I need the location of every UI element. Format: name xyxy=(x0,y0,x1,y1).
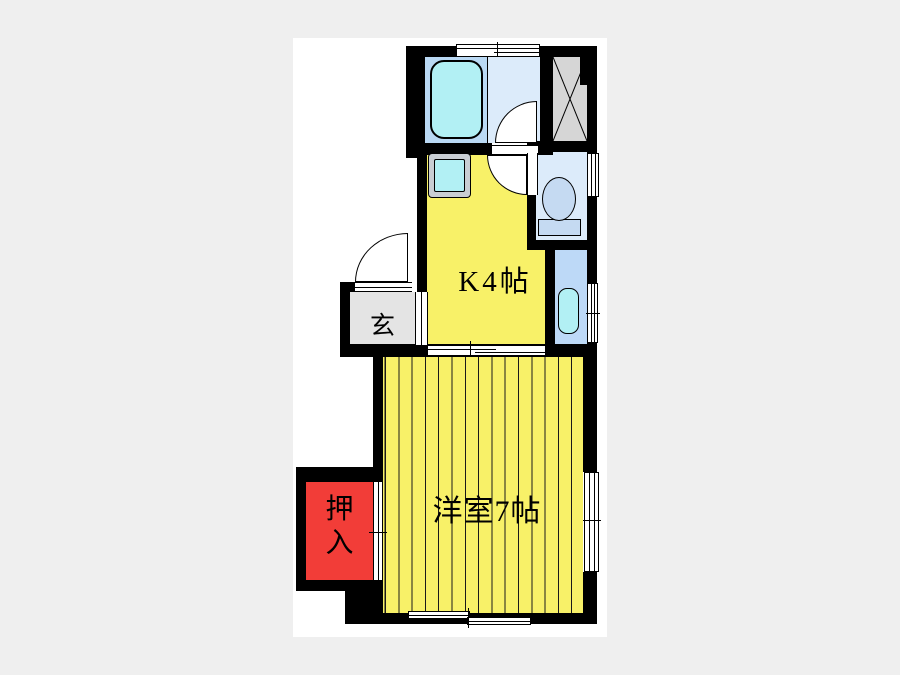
wash-window xyxy=(587,283,598,343)
closet-sliding-door xyxy=(373,482,383,580)
kitchen-room-sliding-door xyxy=(428,344,545,357)
wall-closet-bottom xyxy=(296,580,383,591)
western-room-label: 洋室7帖 xyxy=(417,486,557,530)
entrance-threshold xyxy=(355,282,412,292)
floorplan-page: K4帖 洋室7帖 玄 押 入 xyxy=(0,0,900,675)
kitchen-label: K4帖 xyxy=(435,258,555,300)
wash-basin xyxy=(558,288,579,334)
wall-bath-left xyxy=(406,46,425,158)
sliding-door-tick xyxy=(470,341,471,357)
western-room-floor xyxy=(383,357,583,613)
wall-kitchen-left xyxy=(417,146,427,292)
toilet-window xyxy=(587,153,599,197)
wall-room-right-lower xyxy=(583,572,597,613)
room-bottom-window-right-sash xyxy=(467,617,531,625)
room-bottom-window-left-sash xyxy=(408,611,470,619)
entrance-label: 玄 xyxy=(360,306,405,342)
kitchen-sink-basin xyxy=(434,159,465,192)
kitchen-sink xyxy=(428,153,471,198)
wall-room-right-upper xyxy=(583,344,597,472)
room-bottom-window-tick xyxy=(468,608,469,628)
toilet-tank xyxy=(538,219,581,236)
closet-label-line1: 押 xyxy=(306,493,373,527)
entrance-kitchen-opening xyxy=(415,292,428,345)
wall-toilet-left xyxy=(527,195,536,240)
closet-label: 押 入 xyxy=(306,493,373,561)
wall-shaft-notch xyxy=(580,46,597,85)
top-window-tick xyxy=(497,42,498,56)
closet-label-line2: 入 xyxy=(306,527,373,561)
bathtub xyxy=(430,60,483,139)
wall-entrance-top-corner xyxy=(340,282,355,292)
wall-room-top-left xyxy=(343,344,428,357)
room-side-window xyxy=(584,472,599,572)
wall-room-left xyxy=(373,357,383,467)
wall-corner-step xyxy=(345,591,383,613)
wall-closet-left xyxy=(296,482,306,580)
toilet-bowl xyxy=(542,177,576,221)
toilet-doorway xyxy=(527,153,538,195)
wall-closet-top xyxy=(296,467,383,482)
top-window xyxy=(456,44,540,57)
wall-toilet-bottom xyxy=(527,240,597,250)
